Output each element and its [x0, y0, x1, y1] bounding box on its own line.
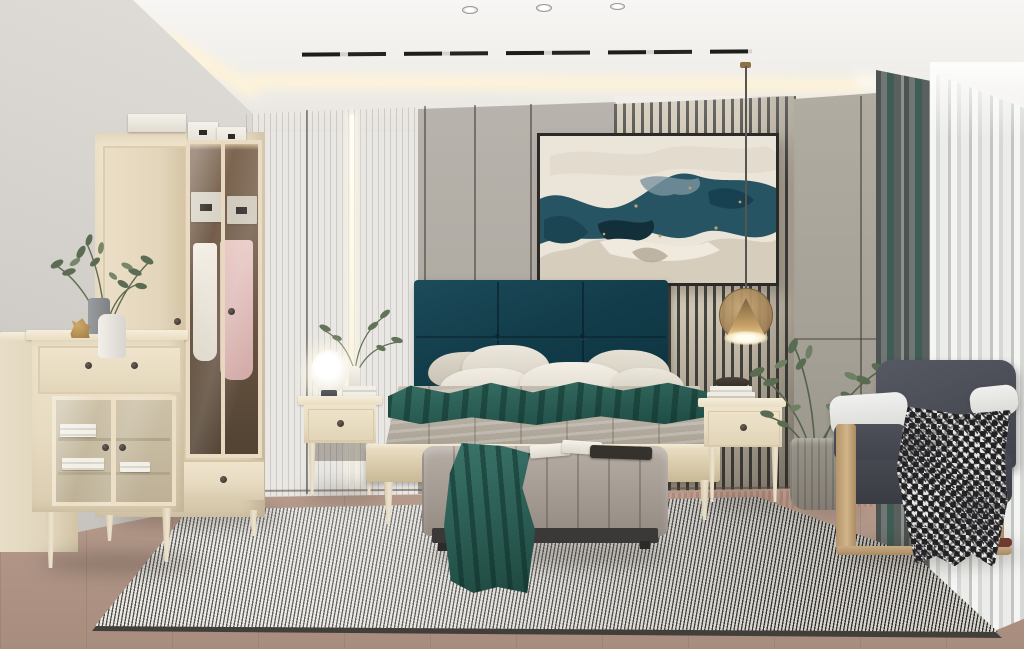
globe-table-lamp: [311, 350, 347, 394]
downlight-icon: [462, 6, 478, 14]
nightstand-top: [298, 396, 382, 405]
artwork-canvas: [540, 136, 776, 283]
glass-door-mullion: [111, 398, 116, 504]
tablet-tray: [590, 445, 652, 460]
box-label: [199, 130, 207, 135]
nightstand-shadow: [706, 494, 790, 508]
chair-frame-left: [836, 424, 856, 550]
downlight-icon: [610, 3, 625, 10]
drawer-knob: [220, 476, 227, 483]
glass-door-knob: [228, 308, 235, 315]
drawer-knob: [131, 362, 138, 369]
nightstand-shadow: [305, 486, 385, 500]
nightstand-shelf-gap: [310, 443, 370, 461]
door-knob: [102, 444, 109, 451]
abstract-artwork: [537, 133, 779, 286]
bedroom-scene: [0, 0, 1024, 649]
tuft-button: [580, 334, 585, 339]
bench-foot: [640, 541, 650, 549]
tuft-button: [495, 334, 500, 339]
teal-throw: [444, 443, 542, 593]
box-label: [228, 134, 235, 139]
drawer-knob: [85, 362, 92, 369]
dresser-shadow: [40, 552, 200, 574]
headboard-seam: [416, 336, 666, 338]
curtain-glow: [930, 62, 1024, 362]
candle: [349, 366, 360, 388]
wardrobe-knob: [174, 318, 181, 325]
door-knob: [119, 444, 126, 451]
glass-door-mullion: [221, 142, 225, 456]
vase-white: [98, 314, 126, 358]
book-stack: [343, 386, 376, 396]
pendant-cord: [745, 66, 747, 292]
storage-box: [128, 114, 186, 132]
drawer-knob: [337, 420, 344, 427]
downlight-icon: [536, 4, 552, 12]
